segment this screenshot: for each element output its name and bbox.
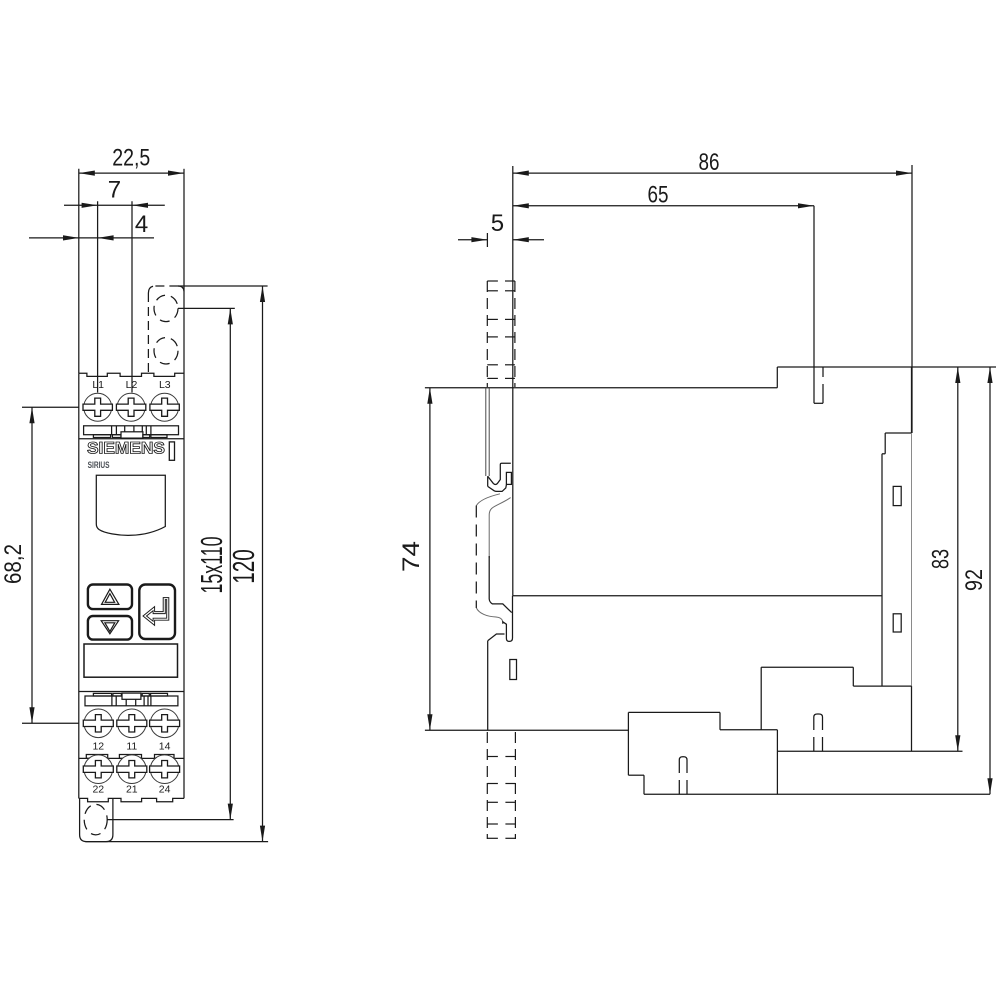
svg-text:21: 21 [126, 784, 138, 796]
svg-text:SIRIUS: SIRIUS [88, 460, 110, 471]
svg-text:68,2: 68,2 [0, 544, 27, 584]
svg-text:120: 120 [226, 549, 261, 584]
svg-text:22: 22 [92, 784, 104, 796]
svg-text:74: 74 [398, 541, 425, 572]
svg-text:L1: L1 [92, 379, 104, 391]
svg-text:92: 92 [961, 569, 988, 591]
svg-text:65: 65 [648, 181, 669, 208]
svg-text:7: 7 [108, 177, 121, 204]
svg-text:14: 14 [159, 740, 171, 752]
svg-text:4: 4 [135, 211, 148, 238]
svg-text:L2: L2 [126, 379, 138, 391]
svg-text:11: 11 [126, 740, 137, 752]
svg-text:12: 12 [92, 740, 104, 752]
svg-text:SIEMENS: SIEMENS [87, 440, 165, 458]
svg-text:5: 5 [491, 210, 504, 237]
svg-text:83: 83 [928, 549, 955, 569]
svg-text:22,5: 22,5 [112, 145, 150, 172]
svg-text:15x110: 15x110 [194, 537, 229, 594]
svg-text:86: 86 [699, 149, 720, 176]
svg-text:24: 24 [159, 784, 171, 796]
svg-text:L3: L3 [159, 379, 171, 391]
